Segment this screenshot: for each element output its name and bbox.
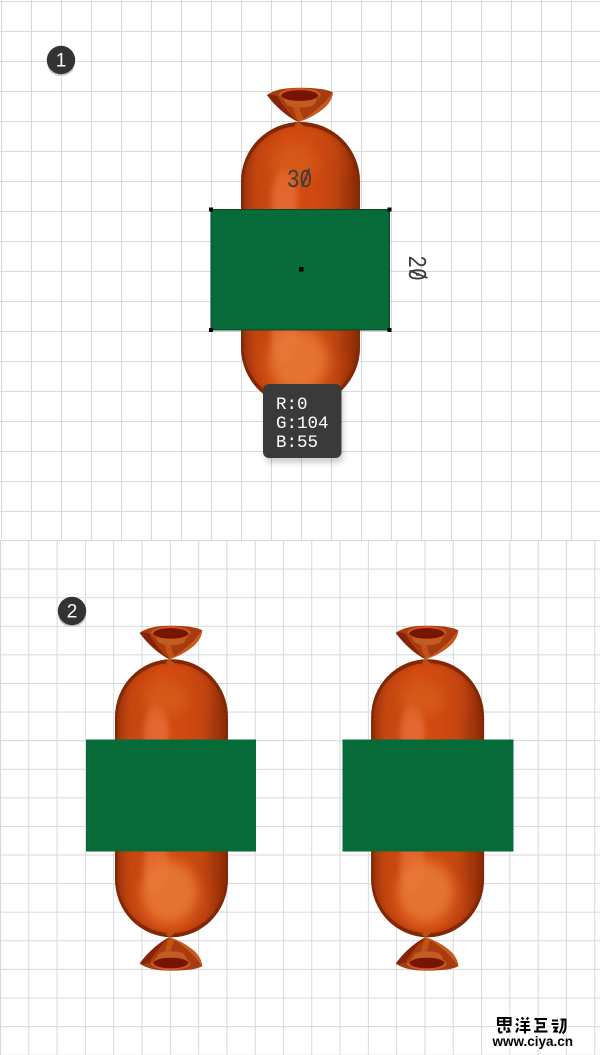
svg-text:G:104: G:104 (276, 414, 329, 434)
svg-text:2: 2 (67, 602, 78, 623)
svg-text:R:0: R:0 (276, 395, 308, 415)
svg-text:1: 1 (56, 51, 67, 72)
svg-text:www.ciya.cn: www.ciya.cn (491, 1034, 573, 1049)
svg-text:B:55: B:55 (276, 433, 318, 453)
